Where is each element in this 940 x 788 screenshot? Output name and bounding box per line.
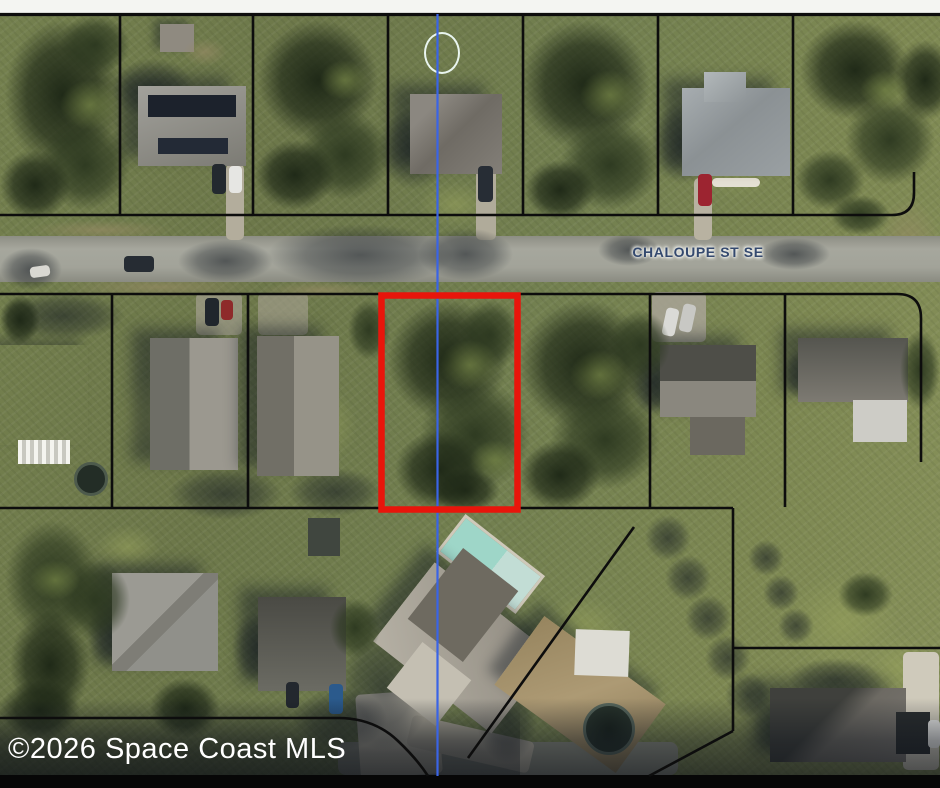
parcel-overlay-svg: [0, 0, 940, 788]
property-outline: [382, 296, 518, 510]
parcel-boundary-lines: [0, 14, 940, 776]
parcel-line: [468, 527, 634, 758]
mls-aerial-map: CHALOUPE ST SE ©2026 Space Coast MLS: [0, 0, 940, 788]
mls-watermark: ©2026 Space Coast MLS: [8, 733, 346, 766]
parcel-line: [0, 294, 921, 462]
parcel-line: [649, 731, 733, 776]
street-name-label: CHALOUPE ST SE: [628, 244, 768, 260]
parcel-line: [0, 172, 914, 215]
